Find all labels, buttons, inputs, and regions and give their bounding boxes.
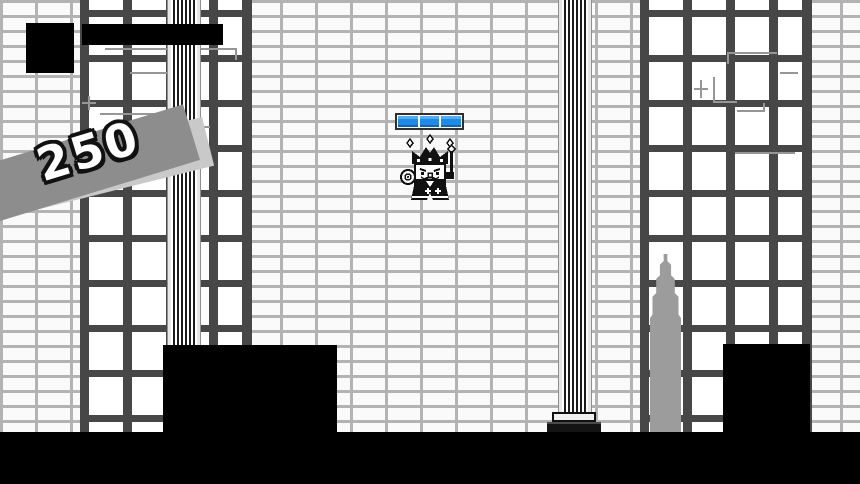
boss-health-segment <box>420 116 440 127</box>
boss-health-segment <box>441 116 461 127</box>
player-health-bar <box>82 24 223 45</box>
window-reflection-line <box>130 72 168 74</box>
platform-right <box>723 344 810 433</box>
king-boss-sprite <box>400 134 460 202</box>
boss-health-bar <box>395 113 464 130</box>
window-reflection-line <box>780 72 798 74</box>
platform-left <box>163 345 337 433</box>
column-base-step <box>552 412 596 422</box>
window-reflection-line <box>735 152 795 154</box>
window-reflection-line <box>727 52 729 64</box>
fluted-column-center <box>559 0 591 414</box>
game-scene-brick-wall[interactable]: 250 <box>0 0 860 484</box>
window-reflection-line <box>737 110 765 112</box>
boss-health-segment <box>398 116 418 127</box>
window-reflection-line <box>694 88 708 90</box>
player-portrait <box>26 23 74 73</box>
window-reflection-line <box>713 101 737 103</box>
window-reflection-line <box>727 52 777 54</box>
ground <box>0 432 860 484</box>
window-reflection-line <box>713 77 715 103</box>
window-reflection-line <box>235 48 237 60</box>
window-reflection-line <box>88 96 90 110</box>
window-reflection-line <box>763 103 765 112</box>
